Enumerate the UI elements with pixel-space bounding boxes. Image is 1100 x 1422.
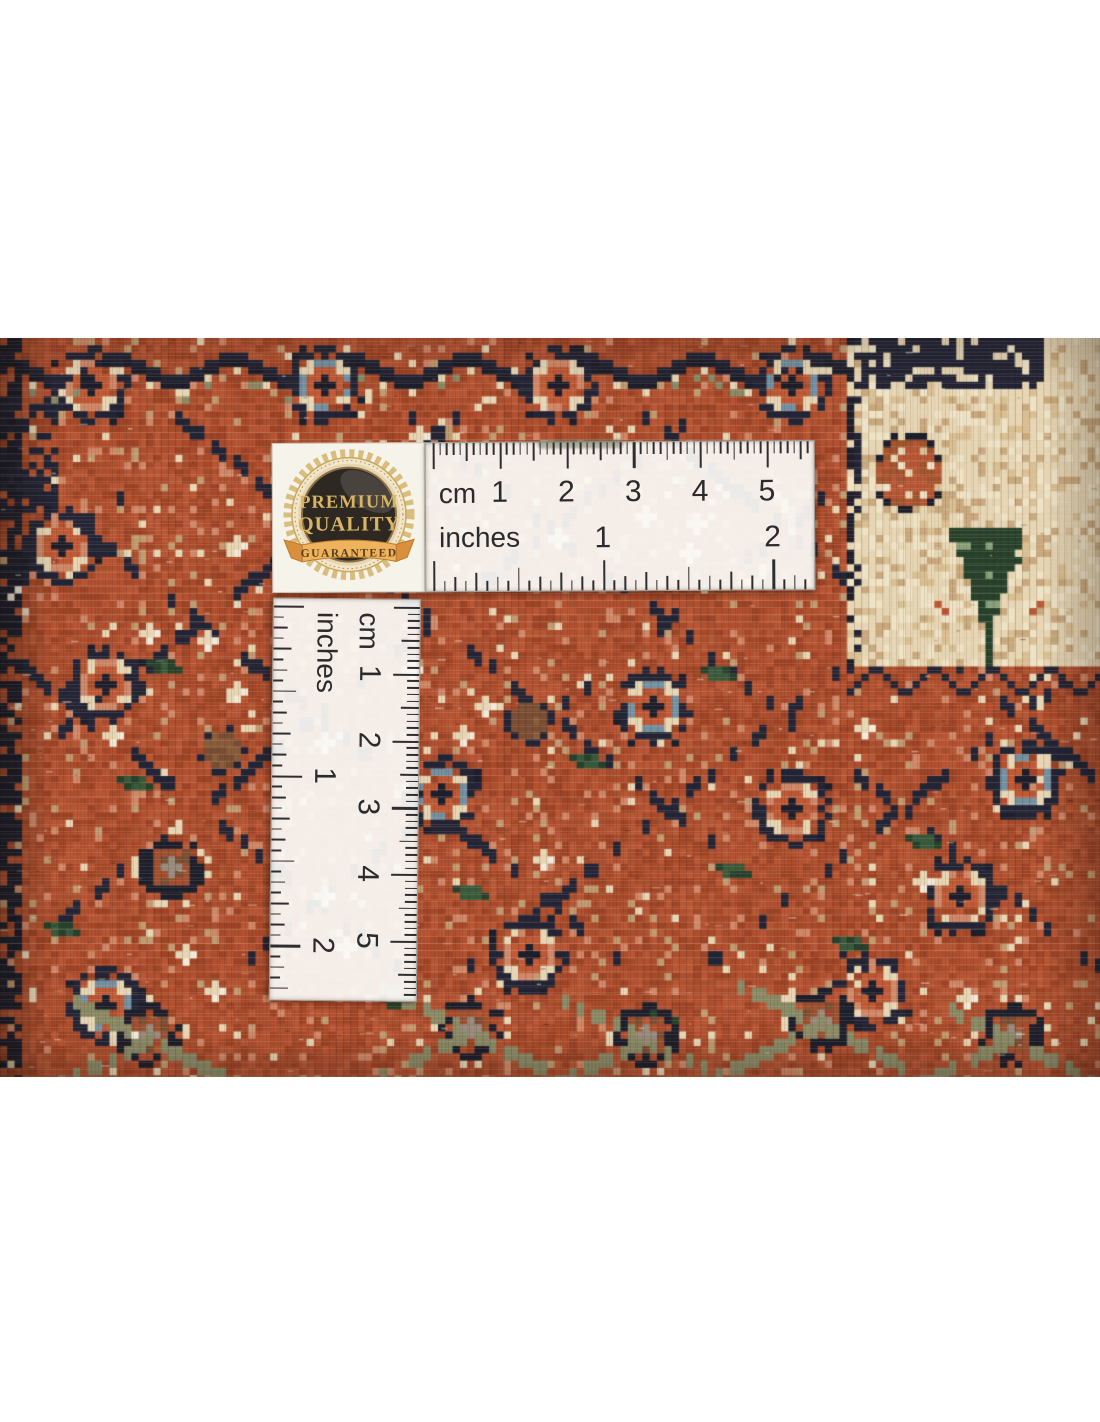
ruler-vertical: cm 1 2 3 4 5 inches 1 2 [269,597,421,1002]
cm-tick-row [382,600,420,1001]
photo-page: PREMIUM QUALITY GUARANTEED cm 1 2 3 4 5 … [0,0,1100,1422]
ruler-horizontal: cm 1 2 3 4 5 inches 1 2 [425,440,816,592]
premium-quality-badge: PREMIUM QUALITY GUARANTEED [272,442,426,593]
badge-ribbon-text: GUARANTEED [301,547,398,560]
inch-number: 2 [764,522,781,552]
inch-tick-row [426,555,814,591]
inches-unit-label: inches [312,612,341,693]
inch-number: 1 [309,767,339,784]
inches-unit-label: inches [439,524,520,552]
cm-number: 3 [625,477,642,507]
badge-emblem-icon: PREMIUM QUALITY GUARANTEED [273,443,425,592]
cm-number: 1 [354,665,384,682]
cm-number: 4 [352,865,382,882]
inch-number: 1 [594,523,611,553]
cm-unit-label: cm [439,480,476,508]
cm-number: 5 [351,932,381,949]
cm-number: 5 [758,476,775,506]
cm-number: 2 [558,477,575,507]
inch-tick-row [270,598,308,999]
cm-number: 1 [491,478,508,508]
rug-photo: PREMIUM QUALITY GUARANTEED cm 1 2 3 4 5 … [0,338,1100,1077]
horizontal-ruler-assembly: PREMIUM QUALITY GUARANTEED cm 1 2 3 4 5 … [272,440,817,593]
cm-number: 3 [353,798,383,815]
cm-number: 4 [692,477,709,507]
cm-tick-row [426,441,814,477]
cm-unit-label: cm [354,612,382,650]
badge-title-line2: QUALITY [298,513,401,536]
cm-number: 2 [353,732,383,749]
inch-number: 2 [307,937,337,954]
badge-title-line1: PREMIUM [299,492,399,513]
